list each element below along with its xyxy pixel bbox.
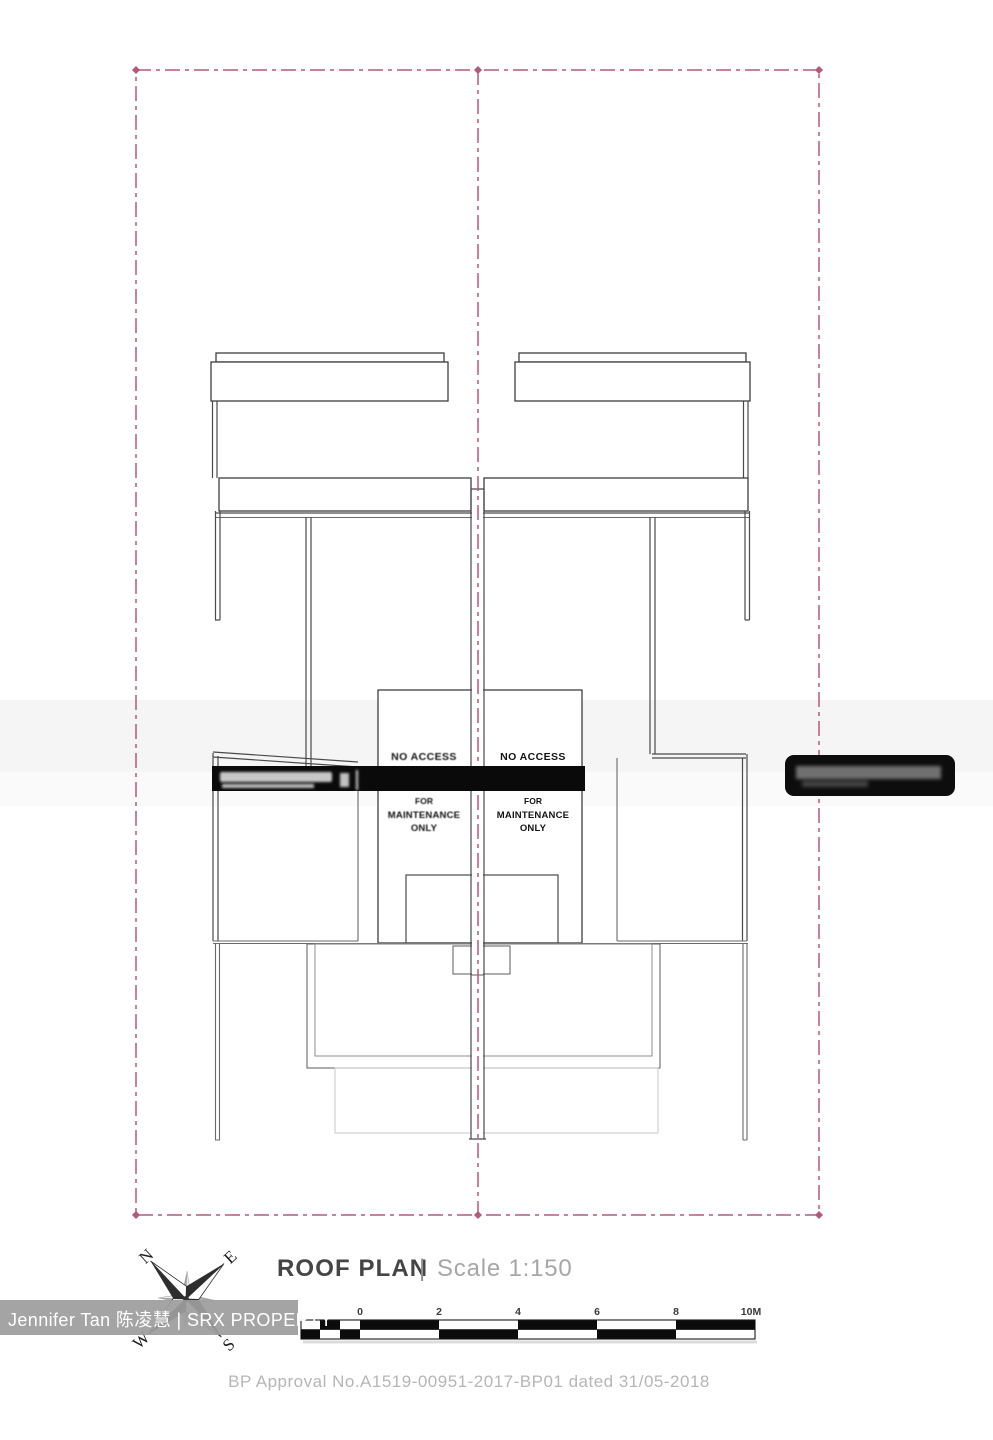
watermark-text: Jennifer Tan 陈凌慧 | SRX PROPERTY (8, 1310, 333, 1330)
title-scale: Scale 1:150 (437, 1255, 573, 1282)
maintenance-label: MAINTENANCE (497, 810, 569, 821)
no-access-label: NO ACCESS (500, 751, 566, 763)
plan-title: ROOF PLAN | Scale 1:150 (277, 1255, 573, 1282)
scale-tick-0: 0 (357, 1306, 363, 1318)
only-label: ONLY (411, 823, 438, 834)
only-label: ONLY (520, 823, 547, 834)
for-label: FOR (524, 796, 542, 806)
roof-plan-page: NO ACCESS FOR MAINTENANCE ONLY NO ACCESS… (0, 0, 993, 1440)
approval-note: BP Approval No.A1519-00951-2017-BP01 dat… (228, 1372, 710, 1391)
page-title: ROOF PLAN (277, 1255, 428, 1282)
watermark: Jennifer Tan 陈凌慧 | SRX PROPERTY (0, 1300, 333, 1335)
maintenance-label: MAINTENANCE (388, 810, 460, 821)
scale-tick-10m: 10M (741, 1306, 762, 1318)
compass-south-label: S (219, 1335, 239, 1355)
scale-tick-2: 2 (436, 1306, 442, 1318)
for-label: FOR (415, 796, 433, 806)
no-access-label: NO ACCESS (391, 751, 457, 763)
scale-tick-6: 6 (594, 1306, 600, 1318)
scale-tick-4: 4 (515, 1306, 521, 1318)
scale-bar: 0 2 4 6 8 10M (301, 1306, 761, 1342)
right-top-roof (515, 353, 750, 478)
left-top-roof (211, 353, 448, 478)
redaction-bar (212, 766, 585, 791)
scale-tick-8: 8 (673, 1306, 679, 1318)
address-redaction-pill (785, 755, 955, 796)
title-separator: | (419, 1255, 425, 1282)
